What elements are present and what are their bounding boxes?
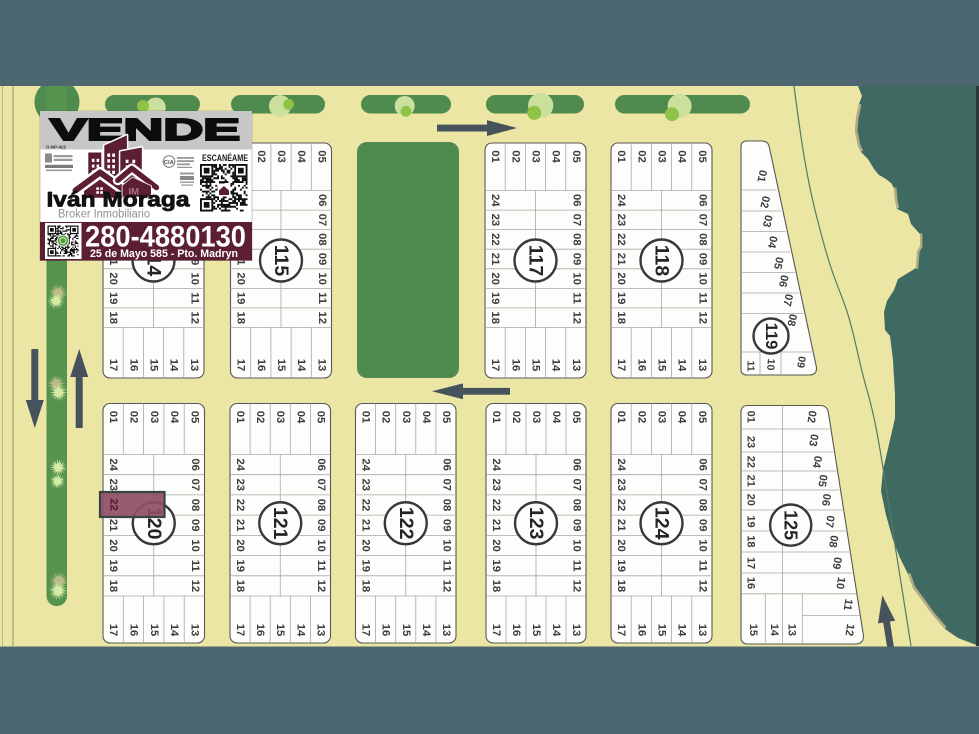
svg-text:15: 15 bbox=[275, 359, 287, 372]
svg-text:17: 17 bbox=[745, 557, 757, 569]
svg-text:02: 02 bbox=[380, 411, 392, 424]
svg-text:14: 14 bbox=[768, 624, 780, 637]
svg-text:03: 03 bbox=[274, 411, 286, 424]
svg-text:05: 05 bbox=[815, 474, 829, 488]
svg-text:19: 19 bbox=[615, 559, 627, 572]
svg-text:20: 20 bbox=[615, 539, 627, 552]
svg-text:20: 20 bbox=[107, 272, 119, 285]
svg-text:03: 03 bbox=[148, 411, 160, 424]
svg-text:24: 24 bbox=[615, 194, 627, 207]
svg-text:15: 15 bbox=[274, 624, 286, 637]
svg-text:01: 01 bbox=[490, 411, 502, 424]
svg-text:02: 02 bbox=[254, 411, 266, 424]
svg-text:09: 09 bbox=[316, 253, 328, 266]
svg-text:07: 07 bbox=[780, 293, 794, 307]
svg-text:09: 09 bbox=[697, 519, 709, 532]
svg-text:09: 09 bbox=[794, 355, 808, 369]
svg-text:13: 13 bbox=[188, 624, 200, 637]
svg-text:05: 05 bbox=[440, 411, 452, 424]
svg-text:07: 07 bbox=[571, 214, 583, 227]
svg-text:01: 01 bbox=[754, 169, 768, 183]
svg-text:17: 17 bbox=[107, 624, 119, 637]
svg-text:125: 125 bbox=[781, 510, 801, 540]
svg-text:07: 07 bbox=[315, 479, 327, 492]
svg-text:14: 14 bbox=[295, 359, 307, 372]
svg-text:23: 23 bbox=[745, 436, 757, 448]
svg-text:14: 14 bbox=[294, 624, 306, 637]
svg-text:21: 21 bbox=[489, 253, 501, 266]
svg-text:19: 19 bbox=[107, 292, 119, 305]
svg-text:11: 11 bbox=[571, 560, 583, 572]
svg-text:19: 19 bbox=[234, 559, 246, 572]
svg-text:19: 19 bbox=[107, 559, 119, 572]
svg-text:10: 10 bbox=[571, 272, 583, 285]
svg-text:14: 14 bbox=[676, 624, 688, 637]
svg-text:15: 15 bbox=[148, 624, 160, 637]
svg-text:10: 10 bbox=[189, 272, 201, 285]
svg-text:05: 05 bbox=[188, 411, 200, 424]
svg-text:19: 19 bbox=[490, 559, 502, 572]
svg-text:18: 18 bbox=[615, 311, 627, 324]
svg-text:06: 06 bbox=[316, 194, 328, 207]
svg-text:16: 16 bbox=[254, 624, 266, 637]
svg-text:04: 04 bbox=[420, 411, 432, 424]
svg-text:01: 01 bbox=[615, 411, 627, 424]
svg-text:09: 09 bbox=[571, 253, 583, 266]
svg-text:ESCANÉAME: ESCANÉAME bbox=[202, 153, 248, 163]
svg-text:01: 01 bbox=[745, 411, 757, 423]
svg-text:07: 07 bbox=[189, 479, 201, 492]
svg-text:08: 08 bbox=[441, 499, 453, 512]
svg-text:02: 02 bbox=[510, 411, 522, 424]
svg-text:11: 11 bbox=[441, 560, 453, 572]
svg-text:20: 20 bbox=[615, 272, 627, 285]
svg-text:12: 12 bbox=[316, 311, 328, 324]
svg-text:23: 23 bbox=[489, 214, 501, 227]
svg-text:19: 19 bbox=[235, 292, 247, 305]
svg-text:17: 17 bbox=[615, 624, 627, 637]
svg-text:04: 04 bbox=[550, 150, 562, 163]
svg-text:07: 07 bbox=[697, 479, 709, 492]
svg-text:09: 09 bbox=[441, 519, 453, 532]
svg-text:09: 09 bbox=[571, 519, 583, 532]
svg-text:02: 02 bbox=[127, 411, 139, 424]
svg-text:24: 24 bbox=[360, 458, 372, 471]
svg-text:22: 22 bbox=[745, 456, 757, 468]
svg-text:20: 20 bbox=[490, 539, 502, 552]
svg-text:23: 23 bbox=[490, 479, 502, 492]
svg-text:117: 117 bbox=[525, 245, 547, 276]
svg-text:13: 13 bbox=[696, 624, 708, 637]
svg-text:21: 21 bbox=[745, 475, 757, 487]
svg-text:11: 11 bbox=[697, 560, 709, 572]
svg-text:10: 10 bbox=[764, 358, 777, 371]
svg-text:03: 03 bbox=[656, 150, 668, 163]
svg-text:12: 12 bbox=[571, 580, 583, 593]
svg-text:01: 01 bbox=[489, 150, 501, 163]
svg-text:10: 10 bbox=[571, 539, 583, 552]
svg-text:09: 09 bbox=[315, 519, 327, 532]
svg-text:10: 10 bbox=[315, 539, 327, 552]
svg-text:24: 24 bbox=[107, 458, 119, 471]
svg-text:Broker Inmobiliario: Broker Inmobiliario bbox=[58, 209, 150, 221]
svg-text:07: 07 bbox=[316, 214, 328, 227]
svg-text:16: 16 bbox=[127, 624, 139, 637]
svg-text:20: 20 bbox=[107, 539, 119, 552]
svg-text:04: 04 bbox=[676, 411, 688, 424]
svg-text:18: 18 bbox=[745, 535, 757, 547]
svg-text:16: 16 bbox=[745, 577, 757, 589]
svg-text:05: 05 bbox=[696, 411, 708, 424]
svg-text:20: 20 bbox=[235, 272, 247, 285]
svg-text:06: 06 bbox=[697, 458, 709, 471]
svg-text:20: 20 bbox=[489, 272, 501, 285]
svg-text:08: 08 bbox=[571, 233, 583, 246]
svg-text:23: 23 bbox=[107, 479, 119, 492]
svg-text:23: 23 bbox=[615, 214, 627, 227]
svg-text:18: 18 bbox=[107, 580, 119, 593]
svg-text:16: 16 bbox=[380, 624, 392, 637]
svg-text:11: 11 bbox=[189, 292, 201, 304]
svg-text:18: 18 bbox=[234, 580, 246, 593]
svg-text:06: 06 bbox=[189, 458, 201, 471]
svg-text:17: 17 bbox=[234, 624, 246, 637]
svg-text:22: 22 bbox=[615, 499, 627, 512]
svg-text:09: 09 bbox=[830, 556, 844, 570]
svg-text:14: 14 bbox=[550, 624, 562, 637]
svg-text:13: 13 bbox=[570, 624, 582, 637]
svg-text:03: 03 bbox=[400, 411, 412, 424]
svg-text:10: 10 bbox=[189, 539, 201, 552]
svg-text:05: 05 bbox=[570, 411, 582, 424]
svg-text:03: 03 bbox=[530, 411, 542, 424]
svg-text:17: 17 bbox=[235, 359, 247, 372]
svg-text:122: 122 bbox=[395, 507, 417, 540]
svg-text:14: 14 bbox=[550, 359, 562, 372]
svg-text:04: 04 bbox=[295, 150, 307, 163]
svg-text:08: 08 bbox=[826, 534, 840, 548]
svg-text:18: 18 bbox=[360, 580, 372, 593]
svg-text:06: 06 bbox=[776, 274, 790, 288]
svg-text:05: 05 bbox=[696, 150, 708, 163]
svg-text:06: 06 bbox=[441, 458, 453, 471]
svg-text:24: 24 bbox=[490, 458, 502, 471]
svg-text:15: 15 bbox=[530, 359, 542, 372]
svg-text:12: 12 bbox=[189, 311, 201, 324]
svg-text:11: 11 bbox=[697, 292, 709, 304]
svg-text:18: 18 bbox=[235, 311, 247, 324]
svg-text:01: 01 bbox=[107, 411, 119, 424]
svg-text:24: 24 bbox=[489, 194, 501, 207]
svg-text:02: 02 bbox=[635, 411, 647, 424]
svg-text:21: 21 bbox=[234, 519, 246, 532]
svg-text:14: 14 bbox=[420, 624, 432, 637]
svg-text:06: 06 bbox=[571, 458, 583, 471]
svg-text:12: 12 bbox=[842, 623, 856, 637]
svg-text:05: 05 bbox=[314, 411, 326, 424]
svg-text:22: 22 bbox=[234, 499, 246, 512]
svg-text:20: 20 bbox=[234, 539, 246, 552]
svg-text:121: 121 bbox=[269, 507, 291, 540]
svg-text:13: 13 bbox=[570, 359, 582, 372]
svg-text:10: 10 bbox=[441, 539, 453, 552]
svg-text:22: 22 bbox=[489, 233, 501, 246]
svg-text:08: 08 bbox=[315, 499, 327, 512]
svg-text:11: 11 bbox=[571, 292, 583, 304]
svg-text:08: 08 bbox=[189, 499, 201, 512]
svg-text:21: 21 bbox=[107, 519, 119, 532]
svg-text:11: 11 bbox=[189, 560, 201, 572]
svg-text:21: 21 bbox=[490, 519, 502, 532]
svg-text:21: 21 bbox=[615, 519, 627, 532]
svg-text:16: 16 bbox=[635, 624, 647, 637]
svg-text:16: 16 bbox=[127, 359, 139, 372]
svg-text:03: 03 bbox=[760, 214, 774, 228]
svg-text:17: 17 bbox=[360, 624, 372, 637]
svg-text:07: 07 bbox=[697, 214, 709, 227]
svg-text:07: 07 bbox=[823, 515, 837, 529]
svg-text:19: 19 bbox=[360, 559, 372, 572]
svg-text:22: 22 bbox=[615, 233, 627, 246]
svg-text:15: 15 bbox=[656, 624, 668, 637]
svg-text:06: 06 bbox=[571, 194, 583, 207]
svg-text:12: 12 bbox=[189, 580, 201, 593]
svg-text:01: 01 bbox=[360, 411, 372, 424]
svg-text:11: 11 bbox=[745, 360, 757, 371]
svg-text:115: 115 bbox=[270, 245, 292, 277]
svg-text:12: 12 bbox=[697, 311, 709, 324]
svg-text:10: 10 bbox=[833, 576, 847, 590]
svg-text:23: 23 bbox=[615, 479, 627, 492]
svg-text:09: 09 bbox=[189, 519, 201, 532]
svg-text:21: 21 bbox=[360, 519, 372, 532]
svg-text:04: 04 bbox=[550, 411, 562, 424]
svg-text:16: 16 bbox=[635, 359, 647, 372]
svg-text:12: 12 bbox=[697, 580, 709, 593]
svg-text:16: 16 bbox=[510, 624, 522, 637]
svg-text:08: 08 bbox=[697, 233, 709, 246]
svg-text:15: 15 bbox=[148, 359, 160, 372]
svg-text:11: 11 bbox=[315, 560, 327, 572]
svg-text:CIA: CIA bbox=[164, 160, 175, 166]
svg-text:03: 03 bbox=[806, 433, 820, 447]
svg-text:12: 12 bbox=[441, 580, 453, 593]
svg-text:14: 14 bbox=[168, 359, 180, 372]
svg-text:17: 17 bbox=[490, 624, 502, 637]
svg-text:02: 02 bbox=[757, 195, 771, 209]
svg-text:124: 124 bbox=[651, 507, 673, 540]
svg-text:17: 17 bbox=[489, 359, 501, 372]
svg-text:14: 14 bbox=[676, 359, 688, 372]
svg-text:23: 23 bbox=[234, 479, 246, 492]
svg-text:03: 03 bbox=[275, 150, 287, 163]
svg-text:05: 05 bbox=[771, 256, 785, 270]
svg-text:22: 22 bbox=[360, 499, 372, 512]
svg-text:119: 119 bbox=[762, 323, 780, 350]
svg-text:03: 03 bbox=[530, 150, 542, 163]
svg-text:20: 20 bbox=[745, 494, 757, 506]
svg-text:08: 08 bbox=[316, 233, 328, 246]
svg-text:06: 06 bbox=[819, 493, 833, 507]
svg-text:02: 02 bbox=[509, 150, 521, 163]
svg-text:06: 06 bbox=[697, 194, 709, 207]
svg-text:08: 08 bbox=[697, 499, 709, 512]
svg-text:O.NP-422: O.NP-422 bbox=[46, 145, 67, 150]
svg-text:118: 118 bbox=[651, 245, 673, 277]
svg-text:19: 19 bbox=[745, 515, 757, 527]
svg-text:123: 123 bbox=[525, 507, 547, 540]
svg-text:12: 12 bbox=[571, 311, 583, 324]
svg-text:19: 19 bbox=[489, 292, 501, 305]
svg-text:02: 02 bbox=[804, 410, 818, 424]
svg-text:07: 07 bbox=[441, 479, 453, 492]
svg-text:18: 18 bbox=[107, 311, 119, 324]
svg-text:20: 20 bbox=[360, 539, 372, 552]
svg-text:22: 22 bbox=[490, 499, 502, 512]
svg-text:02: 02 bbox=[635, 150, 647, 163]
svg-text:15: 15 bbox=[400, 624, 412, 637]
svg-text:08: 08 bbox=[571, 499, 583, 512]
svg-text:10: 10 bbox=[316, 272, 328, 285]
svg-text:13: 13 bbox=[315, 359, 327, 372]
svg-text:13: 13 bbox=[314, 624, 326, 637]
svg-text:21: 21 bbox=[615, 253, 627, 266]
svg-text:13: 13 bbox=[188, 359, 200, 372]
svg-text:05: 05 bbox=[570, 150, 582, 163]
svg-text:13: 13 bbox=[696, 359, 708, 372]
svg-text:25 de Mayo 585 - Pto. Madryn: 25 de Mayo 585 - Pto. Madryn bbox=[90, 248, 238, 260]
svg-text:13: 13 bbox=[440, 624, 452, 637]
svg-text:14: 14 bbox=[168, 624, 180, 637]
svg-text:10: 10 bbox=[697, 539, 709, 552]
svg-text:09: 09 bbox=[697, 253, 709, 266]
svg-text:23: 23 bbox=[360, 479, 372, 492]
svg-text:01: 01 bbox=[615, 150, 627, 163]
svg-text:07: 07 bbox=[571, 479, 583, 492]
svg-text:04: 04 bbox=[168, 411, 180, 424]
svg-text:15: 15 bbox=[747, 624, 759, 636]
svg-text:18: 18 bbox=[490, 580, 502, 593]
svg-text:17: 17 bbox=[615, 359, 627, 372]
svg-text:11: 11 bbox=[841, 598, 855, 611]
svg-text:03: 03 bbox=[656, 411, 668, 424]
svg-text:01: 01 bbox=[234, 411, 246, 424]
svg-text:05: 05 bbox=[315, 150, 327, 163]
svg-text:11: 11 bbox=[316, 292, 328, 304]
svg-text:02: 02 bbox=[255, 150, 267, 163]
svg-text:12: 12 bbox=[315, 580, 327, 593]
svg-text:16: 16 bbox=[509, 359, 521, 372]
svg-text:19: 19 bbox=[615, 292, 627, 305]
svg-text:24: 24 bbox=[234, 458, 246, 471]
svg-text:17: 17 bbox=[107, 359, 119, 372]
svg-text:24: 24 bbox=[615, 458, 627, 471]
svg-text:13: 13 bbox=[785, 624, 797, 636]
svg-text:04: 04 bbox=[294, 411, 306, 424]
svg-text:18: 18 bbox=[615, 580, 627, 593]
svg-text:08: 08 bbox=[784, 313, 798, 327]
svg-text:22: 22 bbox=[108, 498, 120, 511]
svg-text:06: 06 bbox=[315, 458, 327, 471]
svg-text:15: 15 bbox=[656, 359, 668, 372]
svg-text:18: 18 bbox=[489, 311, 501, 324]
svg-text:15: 15 bbox=[530, 624, 542, 637]
svg-text:VENDE: VENDE bbox=[50, 112, 240, 147]
svg-text:10: 10 bbox=[697, 272, 709, 285]
svg-text:16: 16 bbox=[255, 359, 267, 372]
svg-text:04: 04 bbox=[676, 150, 688, 163]
